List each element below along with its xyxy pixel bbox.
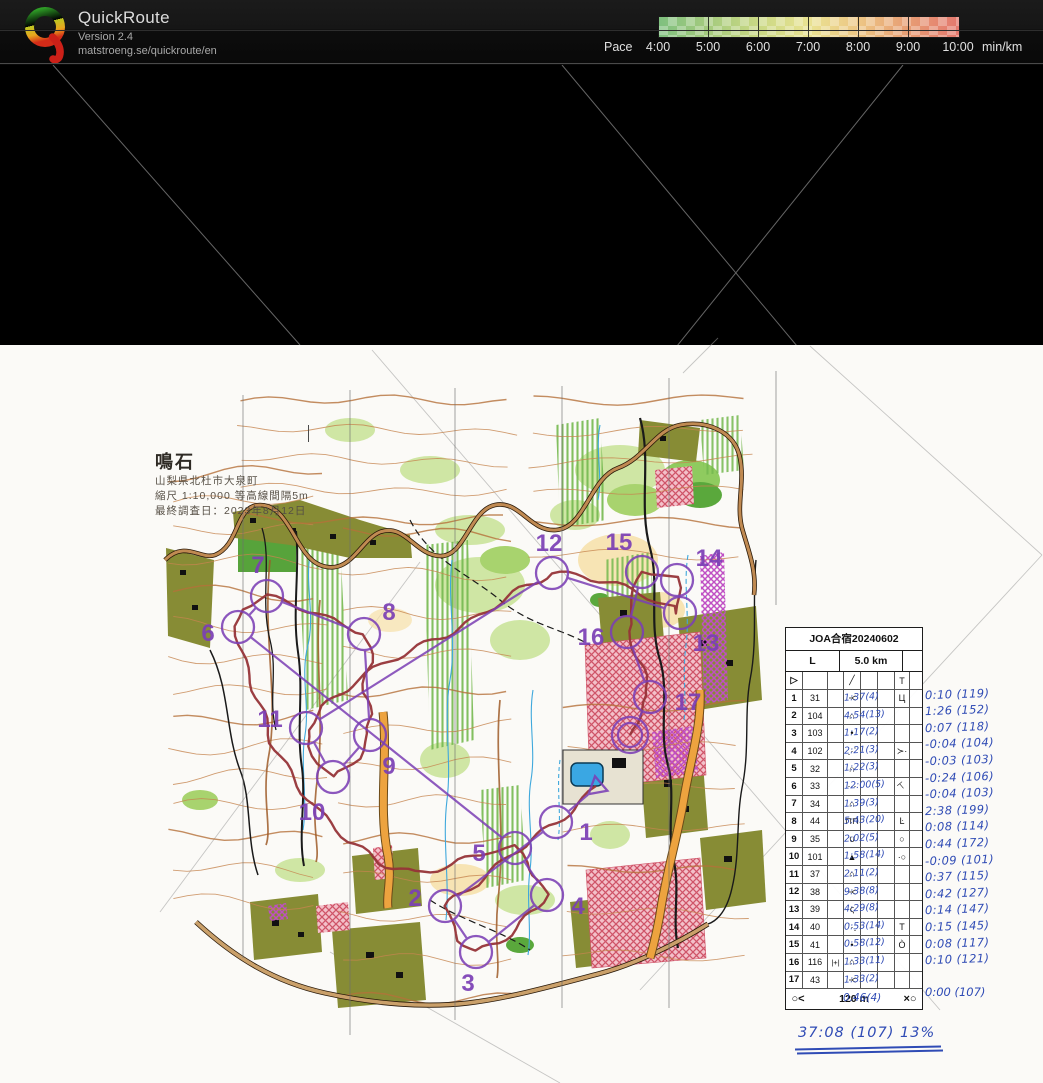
col-f bbox=[878, 796, 895, 813]
control-row-5: 532∩1:22(3) bbox=[786, 760, 922, 778]
col-g-symbol bbox=[895, 725, 910, 742]
col-f bbox=[878, 919, 895, 936]
col-c-symbol bbox=[828, 936, 844, 953]
control-circle-8 bbox=[348, 618, 380, 650]
col-c-symbol bbox=[828, 690, 844, 707]
control-code: 41 bbox=[803, 936, 828, 953]
finish-funnel-icon: ○< bbox=[786, 993, 810, 1005]
control-number-16: 16 bbox=[578, 624, 605, 651]
col-c-symbol bbox=[828, 866, 844, 883]
col-f bbox=[878, 866, 895, 883]
control-number: 9 bbox=[786, 831, 803, 848]
control-number-13: 13 bbox=[693, 630, 720, 657]
control-code: 104 bbox=[803, 708, 828, 725]
feature-symbol: • bbox=[844, 936, 861, 953]
col-h bbox=[910, 725, 921, 742]
control-number: 8 bbox=[786, 813, 803, 830]
feature-symbol: Y bbox=[844, 884, 861, 901]
feature-symbol: ▲ bbox=[844, 848, 861, 865]
course-header-row: L 5.0 km bbox=[786, 651, 922, 672]
control-number-3: 3 bbox=[461, 970, 474, 997]
col-e bbox=[861, 919, 878, 936]
col-g-symbol: Ò bbox=[895, 936, 910, 953]
handwritten-margin-split: 0:37 (115) bbox=[925, 868, 990, 884]
control-row-17: 1743Y1:33(2) bbox=[786, 972, 922, 990]
col-h bbox=[910, 866, 921, 883]
col-h bbox=[910, 954, 921, 971]
control-number: 2 bbox=[786, 708, 803, 725]
control-number-5: 5 bbox=[472, 840, 485, 867]
col-h bbox=[910, 743, 921, 760]
col-e bbox=[861, 778, 878, 795]
col-h bbox=[910, 848, 921, 865]
feature-symbol: ∩ bbox=[844, 954, 861, 971]
control-number-12: 12 bbox=[536, 530, 563, 557]
col-g-symbol bbox=[895, 884, 910, 901]
col-e bbox=[861, 848, 878, 865]
col-f bbox=[878, 760, 895, 777]
control-number-2: 2 bbox=[408, 885, 421, 912]
col-g-glyph: ⊤ bbox=[895, 780, 908, 793]
control-number: 11 bbox=[786, 866, 803, 883]
col-e bbox=[861, 972, 878, 989]
control-description-sheet: JOA合宿20240602 L 5.0 km ▷╱T131YЦ1:37(4)21… bbox=[785, 627, 923, 1010]
col-f bbox=[878, 848, 895, 865]
start-g-symbol: T bbox=[895, 672, 910, 689]
finish-tape-icon: ×○ bbox=[898, 993, 922, 1005]
feature-symbol: ∩ bbox=[844, 760, 861, 777]
col-e bbox=[861, 760, 878, 777]
handwritten-margin-split: -0:04 (103) bbox=[925, 785, 994, 801]
control-code: 43 bbox=[803, 972, 828, 989]
handwritten-margin-split: 2:38 (199) bbox=[925, 802, 990, 818]
handwritten-margin-split: 0:44 (172) bbox=[925, 835, 990, 851]
control-code: 31 bbox=[803, 690, 828, 707]
control-circle-3 bbox=[460, 936, 492, 968]
handwritten-margin-split: 0:10 (119) bbox=[925, 685, 990, 701]
map-title: 鳴石 bbox=[155, 448, 309, 474]
col-c-symbol bbox=[828, 743, 844, 760]
feature-symbol: ⊓⊓ bbox=[844, 813, 861, 830]
feature-symbol: Y bbox=[844, 972, 861, 989]
pool-compound bbox=[563, 750, 643, 804]
handwritten-margin-split: 1:26 (152) bbox=[925, 702, 990, 718]
sheet-cell bbox=[861, 672, 878, 689]
col-h bbox=[910, 884, 921, 901]
handwritten-last-leg: 0.46(4) bbox=[843, 992, 881, 1004]
quickroute-window: QuickRoute Version 2.4 matstroeng.se/qui… bbox=[0, 0, 1043, 1083]
col-e bbox=[861, 813, 878, 830]
col-c-symbol bbox=[828, 901, 844, 918]
col-e bbox=[861, 954, 878, 971]
col-c-symbol bbox=[828, 919, 844, 936]
col-c-symbol bbox=[828, 708, 844, 725]
col-g-symbol: ○ bbox=[895, 831, 910, 848]
col-c-symbol bbox=[828, 972, 844, 989]
control-code: 38 bbox=[803, 884, 828, 901]
handwritten-margin-split: 0:42 (127) bbox=[925, 885, 990, 901]
control-row-1: 131YЦ1:37(4) bbox=[786, 690, 922, 708]
col-h bbox=[910, 760, 921, 777]
col-h bbox=[910, 796, 921, 813]
col-h bbox=[910, 919, 921, 936]
col-f bbox=[878, 954, 895, 971]
control-number: 1 bbox=[786, 690, 803, 707]
control-row-16: 16116|+|∩1:33(11) bbox=[786, 954, 922, 972]
map-margin-tick bbox=[308, 425, 309, 442]
control-code: 40 bbox=[803, 919, 828, 936]
handwritten-margin-split: 0:15 (145) bbox=[925, 918, 990, 934]
control-number-11: 11 bbox=[257, 706, 282, 733]
col-e bbox=[861, 831, 878, 848]
control-number-15: 15 bbox=[606, 529, 633, 556]
control-number: 17 bbox=[786, 972, 803, 989]
handwritten-total-time: 37:08 (107) 13% bbox=[798, 1025, 935, 1041]
course-class: L bbox=[786, 651, 840, 671]
col-g-symbol: ≻· bbox=[895, 743, 910, 760]
control-number: 7 bbox=[786, 796, 803, 813]
col-c-symbol bbox=[828, 848, 844, 865]
col-e bbox=[861, 796, 878, 813]
control-code: 101 bbox=[803, 848, 828, 865]
col-f bbox=[878, 725, 895, 742]
col-f bbox=[878, 972, 895, 989]
control-code: 39 bbox=[803, 901, 828, 918]
handwritten-margin-split: -0:04 (104) bbox=[925, 735, 994, 751]
feature-symbol: ⋱ bbox=[844, 919, 861, 936]
control-number: 3 bbox=[786, 725, 803, 742]
col-g-symbol: Ŀ bbox=[895, 813, 910, 830]
control-row-8: 844⊓⊓Ŀ5:43(20) bbox=[786, 813, 922, 831]
col-g-symbol: ⊤ bbox=[895, 778, 910, 795]
course-leg-line bbox=[250, 608, 256, 614]
col-e bbox=[861, 884, 878, 901]
control-number-9: 9 bbox=[382, 753, 395, 780]
col-h bbox=[910, 708, 921, 725]
sheet-cell bbox=[803, 672, 828, 689]
map-survey-date: 最終調査日：2023年8月12日 bbox=[155, 504, 309, 519]
feature-symbol-glyph: Y bbox=[847, 695, 857, 701]
control-row-15: 1541•Ò0:58(12) bbox=[786, 936, 922, 954]
control-number-14: 14 bbox=[696, 545, 723, 572]
control-code: 33 bbox=[803, 778, 828, 795]
control-number: 12 bbox=[786, 884, 803, 901]
col-c-symbol bbox=[828, 760, 844, 777]
col-h bbox=[910, 972, 921, 989]
control-row-7: 734∩1:39(3) bbox=[786, 796, 922, 814]
col-c-symbol: |+| bbox=[828, 954, 844, 971]
feature-symbol: • bbox=[844, 725, 861, 742]
handwritten-margin-split: -0:03 (103) bbox=[925, 752, 994, 768]
control-code: 37 bbox=[803, 866, 828, 883]
col-f bbox=[878, 708, 895, 725]
control-number-6: 6 bbox=[201, 620, 214, 647]
map-scale: 縮尺 1:10,000 等高線間隔5m bbox=[155, 489, 309, 504]
handwritten-margin-split: 0:08 (117) bbox=[925, 934, 990, 950]
control-number: 4 bbox=[786, 743, 803, 760]
col-g-symbol bbox=[895, 760, 910, 777]
start-row: ▷╱T bbox=[786, 672, 922, 690]
col-f bbox=[878, 778, 895, 795]
control-number: 6 bbox=[786, 778, 803, 795]
control-code: 32 bbox=[803, 760, 828, 777]
start-triangle-icon: ▷ bbox=[786, 672, 803, 689]
control-row-9: 935∪○2:02(5) bbox=[786, 831, 922, 849]
control-circle-14 bbox=[661, 564, 693, 596]
control-code: 34 bbox=[803, 796, 828, 813]
col-h bbox=[910, 831, 921, 848]
course-length: 5.0 km bbox=[840, 651, 903, 671]
sheet-cell bbox=[910, 672, 921, 689]
feature-symbol: ∩ bbox=[844, 866, 861, 883]
handwritten-margin-split: -0:09 (101) bbox=[925, 851, 994, 867]
control-number-7: 7 bbox=[251, 552, 264, 579]
col-f bbox=[878, 743, 895, 760]
control-code: 44 bbox=[803, 813, 828, 830]
col-f bbox=[878, 690, 895, 707]
feature-symbol: ∩ bbox=[844, 796, 861, 813]
control-circle-1 bbox=[540, 806, 572, 838]
col-e bbox=[861, 743, 878, 760]
control-code: 35 bbox=[803, 831, 828, 848]
col-f bbox=[878, 936, 895, 953]
control-row-13: 1339ς4:29(8) bbox=[786, 901, 922, 919]
control-row-11: 1137∩2:11(2) bbox=[786, 866, 922, 884]
col-c-symbol bbox=[828, 831, 844, 848]
col-c-symbol bbox=[828, 796, 844, 813]
handwritten-margin-split: 0:08 (114) bbox=[925, 818, 990, 834]
control-row-10: 10101▲·○1:58(14) bbox=[786, 848, 922, 866]
feature-symbol: ς bbox=[844, 901, 861, 918]
control-row-14: 1440⋱T0:53(14) bbox=[786, 919, 922, 937]
course-leg-line bbox=[365, 651, 369, 718]
col-g-symbol bbox=[895, 708, 910, 725]
control-code: 103 bbox=[803, 725, 828, 742]
col-f bbox=[878, 813, 895, 830]
handwritten-margin-split: 0:07 (118) bbox=[925, 719, 990, 735]
control-row-4: 4102⋰≻·2:21(3) bbox=[786, 743, 922, 761]
sheet-cell bbox=[828, 672, 844, 689]
col-g-symbol: ·○ bbox=[895, 848, 910, 865]
control-code: 116 bbox=[803, 954, 828, 971]
col-f bbox=[878, 901, 895, 918]
col-c-symbol bbox=[828, 778, 844, 795]
handwritten-margin-split: 0:10 (121) bbox=[925, 951, 990, 967]
col-h bbox=[910, 936, 921, 953]
control-number-17: 17 bbox=[675, 689, 702, 716]
feature-symbol: ∪ bbox=[844, 831, 861, 848]
control-number: 5 bbox=[786, 760, 803, 777]
control-circle-6 bbox=[222, 611, 254, 643]
feature-symbol: ∩ bbox=[844, 708, 861, 725]
map-subtitle: 山梨県北杜市大泉町 bbox=[155, 474, 309, 489]
col-e bbox=[861, 901, 878, 918]
feature-symbol: ⋯ bbox=[844, 778, 861, 795]
col-g-symbol bbox=[895, 954, 910, 971]
col-e bbox=[861, 725, 878, 742]
col-g-symbol bbox=[895, 972, 910, 989]
sheet-cell bbox=[878, 672, 895, 689]
control-row-3: 3103•1:17(2) bbox=[786, 725, 922, 743]
control-number-1: 1 bbox=[579, 819, 592, 846]
control-code: 102 bbox=[803, 743, 828, 760]
map-title-block: 鳴石 山梨県北杜市大泉町 縮尺 1:10,000 等高線間隔5m 最終調査日：2… bbox=[155, 448, 309, 519]
col-g-symbol: Ц bbox=[895, 690, 910, 707]
feature-symbol-glyph: Y bbox=[847, 889, 857, 895]
control-row-2: 2104∩4:54(13) bbox=[786, 708, 922, 726]
col-h bbox=[910, 778, 921, 795]
control-number: 14 bbox=[786, 919, 803, 936]
handwritten-finish-split: 0:00 (107) bbox=[925, 985, 985, 999]
feature-symbol-glyph: Y bbox=[847, 977, 857, 983]
control-number: 16 bbox=[786, 954, 803, 971]
col-c-symbol bbox=[828, 725, 844, 742]
start-symbol: ╱ bbox=[844, 672, 861, 689]
col-g-symbol bbox=[895, 866, 910, 883]
col-f bbox=[878, 884, 895, 901]
control-row-6: 633⋯⊤12:00(5) bbox=[786, 778, 922, 796]
col-f bbox=[878, 831, 895, 848]
event-title: JOA合宿20240602 bbox=[786, 628, 922, 651]
feature-symbol: Y bbox=[844, 690, 861, 707]
col-h bbox=[910, 690, 921, 707]
feature-symbol: ⋰ bbox=[844, 743, 861, 760]
control-number: 10 bbox=[786, 848, 803, 865]
control-number: 13 bbox=[786, 901, 803, 918]
control-number-10: 10 bbox=[299, 799, 326, 826]
course-header-empty bbox=[903, 651, 922, 671]
control-row-12: 1238Y9:38(8) bbox=[786, 884, 922, 902]
control-number-8: 8 bbox=[382, 599, 395, 626]
col-g-symbol bbox=[895, 901, 910, 918]
control-number: 15 bbox=[786, 936, 803, 953]
col-h bbox=[910, 901, 921, 918]
col-e bbox=[861, 866, 878, 883]
handwritten-margin-split: -0:24 (106) bbox=[925, 768, 994, 784]
col-e bbox=[861, 708, 878, 725]
col-e bbox=[861, 936, 878, 953]
handwritten-margin-split: 0:14 (147) bbox=[925, 901, 990, 917]
col-c-symbol bbox=[828, 813, 844, 830]
col-g-symbol bbox=[895, 796, 910, 813]
control-number-4: 4 bbox=[571, 893, 585, 920]
col-h bbox=[910, 813, 921, 830]
col-e bbox=[861, 690, 878, 707]
col-c-symbol bbox=[828, 884, 844, 901]
col-g-symbol: T bbox=[895, 919, 910, 936]
